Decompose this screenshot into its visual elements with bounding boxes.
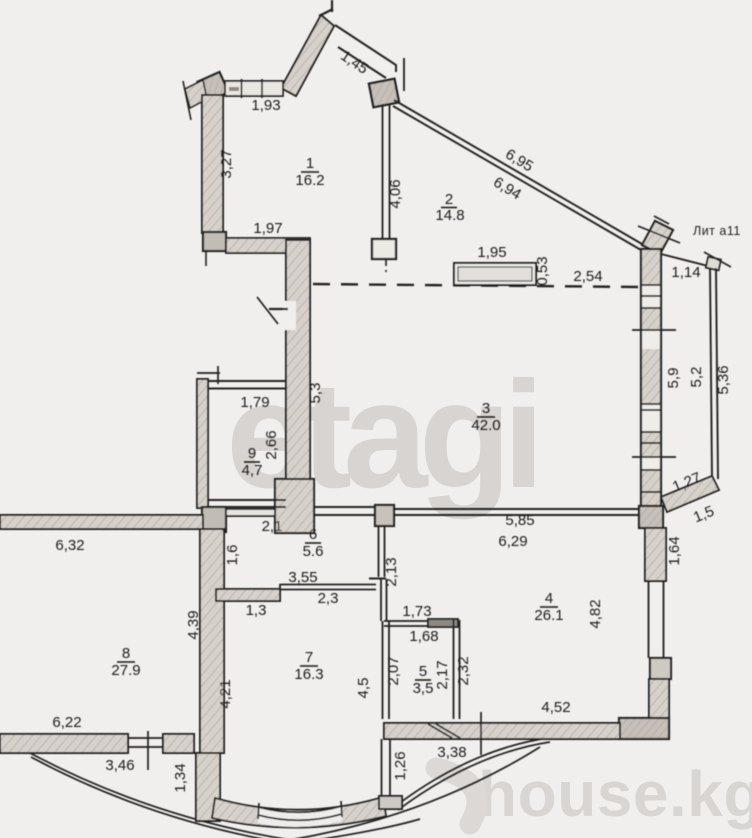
- svg-text:2,3: 2,3: [318, 590, 339, 607]
- svg-text:4,21: 4,21: [217, 679, 234, 708]
- svg-text:1,97: 1,97: [253, 220, 282, 237]
- svg-text:2,66: 2,66: [263, 430, 280, 459]
- svg-text:3,27: 3,27: [218, 149, 235, 178]
- svg-text:16.3: 16.3: [294, 666, 323, 683]
- svg-text:3,5: 3,5: [413, 680, 434, 697]
- svg-text:0,53: 0,53: [534, 256, 551, 285]
- svg-text:4,82: 4,82: [587, 599, 604, 628]
- svg-text:house.kg: house.kg: [478, 758, 752, 830]
- svg-text:16.2: 16.2: [295, 172, 324, 189]
- svg-text:1,26: 1,26: [392, 751, 409, 780]
- svg-text:1,34: 1,34: [172, 763, 189, 792]
- svg-text:6,32: 6,32: [55, 537, 84, 554]
- svg-text:1,95: 1,95: [477, 244, 506, 261]
- svg-text:26.1: 26.1: [534, 607, 563, 624]
- svg-text:3: 3: [482, 400, 490, 417]
- svg-text:4,7: 4,7: [242, 462, 263, 479]
- svg-text:2,13: 2,13: [383, 557, 400, 586]
- svg-text:5,36: 5,36: [715, 365, 732, 394]
- svg-text:1,64: 1,64: [666, 536, 683, 565]
- svg-text:6,22: 6,22: [52, 714, 81, 731]
- svg-text:7: 7: [305, 649, 313, 666]
- svg-text:3,38: 3,38: [437, 744, 466, 761]
- svg-text:1,73: 1,73: [402, 603, 431, 620]
- svg-text:4,52: 4,52: [541, 699, 570, 716]
- svg-text:42.0: 42.0: [471, 417, 500, 434]
- svg-text:2,1: 2,1: [262, 518, 283, 535]
- svg-text:3,46: 3,46: [105, 757, 134, 774]
- svg-text:1,68: 1,68: [409, 628, 438, 645]
- svg-text:5,3: 5,3: [307, 383, 324, 404]
- svg-text:4,06: 4,06: [387, 179, 404, 208]
- svg-text:3,55: 3,55: [288, 569, 317, 586]
- svg-text:8: 8: [122, 645, 130, 662]
- svg-text:5.6: 5.6: [303, 543, 324, 560]
- svg-text:1: 1: [306, 155, 314, 172]
- svg-text:6: 6: [309, 526, 317, 543]
- svg-text:5,9: 5,9: [665, 368, 682, 389]
- svg-text:4,39: 4,39: [185, 610, 202, 639]
- svg-text:9: 9: [248, 445, 256, 462]
- svg-text:2,07: 2,07: [385, 656, 402, 685]
- svg-text:27.9: 27.9: [111, 662, 140, 679]
- svg-text:5,85: 5,85: [505, 512, 534, 529]
- svg-text:1,3: 1,3: [246, 602, 267, 619]
- svg-text:2,32: 2,32: [455, 656, 472, 685]
- svg-text:Лит а11: Лит а11: [693, 224, 741, 238]
- svg-text:6,29: 6,29: [498, 533, 527, 550]
- svg-text:2,17: 2,17: [434, 660, 451, 689]
- svg-text:1,79: 1,79: [240, 394, 269, 411]
- svg-text:5: 5: [419, 663, 427, 680]
- svg-text:2,54: 2,54: [573, 268, 602, 285]
- svg-text:1,14: 1,14: [671, 264, 700, 281]
- svg-text:1,93: 1,93: [251, 97, 280, 114]
- svg-text:5,2: 5,2: [688, 367, 705, 388]
- svg-text:1,6: 1,6: [224, 545, 241, 566]
- svg-text:14.8: 14.8: [435, 207, 464, 224]
- svg-text:4: 4: [545, 590, 553, 607]
- svg-text:4,5: 4,5: [355, 678, 372, 699]
- svg-text:2: 2: [445, 191, 453, 208]
